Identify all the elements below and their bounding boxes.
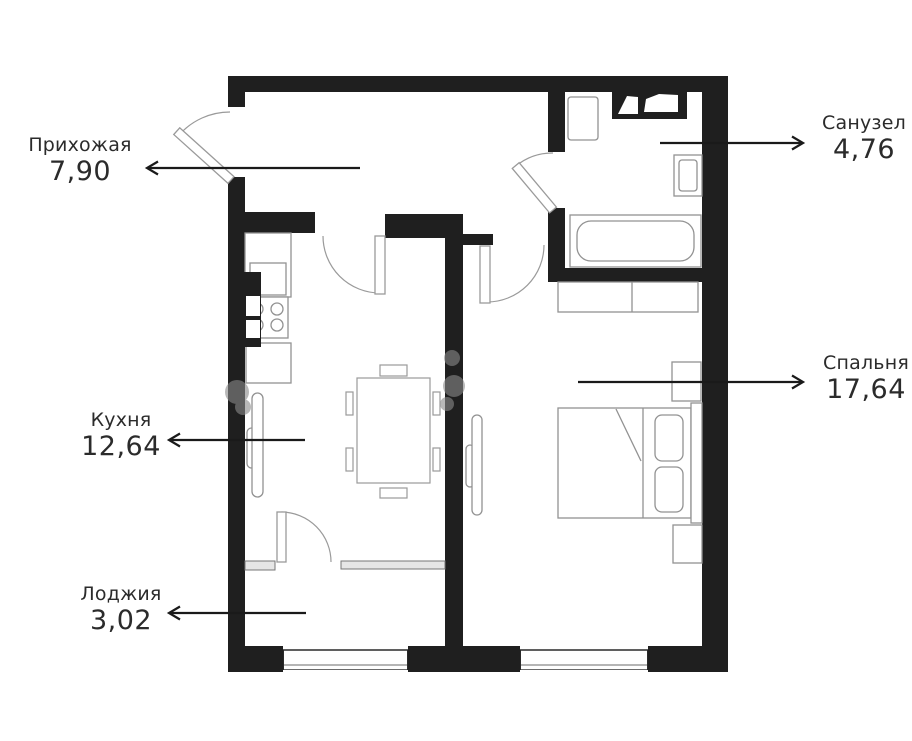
chair: [380, 488, 407, 498]
room-label-hallway: Прихожая 7,90: [15, 134, 145, 187]
chair: [433, 392, 440, 415]
wall-bathroom-left-top: [548, 92, 565, 152]
loggia-door: [277, 512, 331, 562]
floor-plan: Прихожая 7,90 Санузел 4,76 Спальня 17,64…: [0, 0, 912, 741]
burner: [271, 303, 283, 315]
chair: [433, 448, 440, 471]
room-label-kitchen: Кухня 12,64: [56, 409, 186, 462]
bathroom-arrow: [660, 137, 803, 150]
bedroom-radiator: [466, 415, 482, 515]
washing-machine: [568, 97, 598, 140]
hallway-arrow: [147, 162, 360, 175]
room-name: Лоджия: [56, 583, 186, 605]
room-name: Спальня: [801, 352, 912, 374]
pillow: [655, 415, 683, 461]
wall-left-main: [228, 177, 245, 672]
room-label-bathroom: Санузел 4,76: [799, 112, 912, 165]
room-area: 7,90: [15, 156, 145, 187]
bedroom-window: [520, 650, 648, 670]
room-label-loggia: Лоджия 3,02: [56, 583, 186, 636]
entrance-door: [174, 112, 234, 183]
bathtub: [570, 215, 701, 267]
kitchen-counter-low: [246, 343, 291, 383]
room-area: 3,02: [56, 605, 186, 636]
toilet: [674, 155, 702, 196]
bed: [558, 403, 702, 523]
wall-bottom-right: [648, 646, 728, 672]
wall-bottom-center: [408, 646, 520, 672]
wall-top: [228, 76, 728, 92]
wall-hallway-kitchen-a: [228, 212, 315, 233]
wall-bathroom-bottom: [548, 268, 702, 282]
headboard: [691, 403, 702, 523]
bathroom-door: [512, 153, 556, 213]
wardrobe: [558, 282, 698, 312]
washbasin-counter: [612, 92, 687, 119]
dining-table: [346, 365, 440, 498]
walls: [228, 76, 728, 672]
room-area: 4,76: [799, 134, 912, 165]
room-area: 17,64: [801, 374, 912, 405]
ventilation-shaft: [234, 272, 261, 347]
table-top: [357, 378, 430, 483]
wall-left-stub: [228, 76, 245, 107]
loggia-partition: [245, 561, 445, 570]
wall-central: [445, 214, 463, 646]
wall-bedroom-door-stub: [463, 234, 493, 245]
chair: [380, 365, 407, 376]
pillow: [655, 467, 683, 512]
room-name: Кухня: [56, 409, 186, 431]
burner: [271, 319, 283, 331]
room-name: Прихожая: [15, 134, 145, 156]
room-name: Санузел: [799, 112, 912, 134]
wall-right: [702, 76, 728, 672]
chair: [346, 392, 353, 415]
room-label-bedroom: Спальня 17,64: [801, 352, 912, 405]
room-area: 12,64: [56, 431, 186, 462]
chair: [346, 448, 353, 471]
bedroom-door: [480, 245, 544, 303]
loggia-window: [283, 650, 408, 670]
kitchen-door: [323, 236, 385, 294]
